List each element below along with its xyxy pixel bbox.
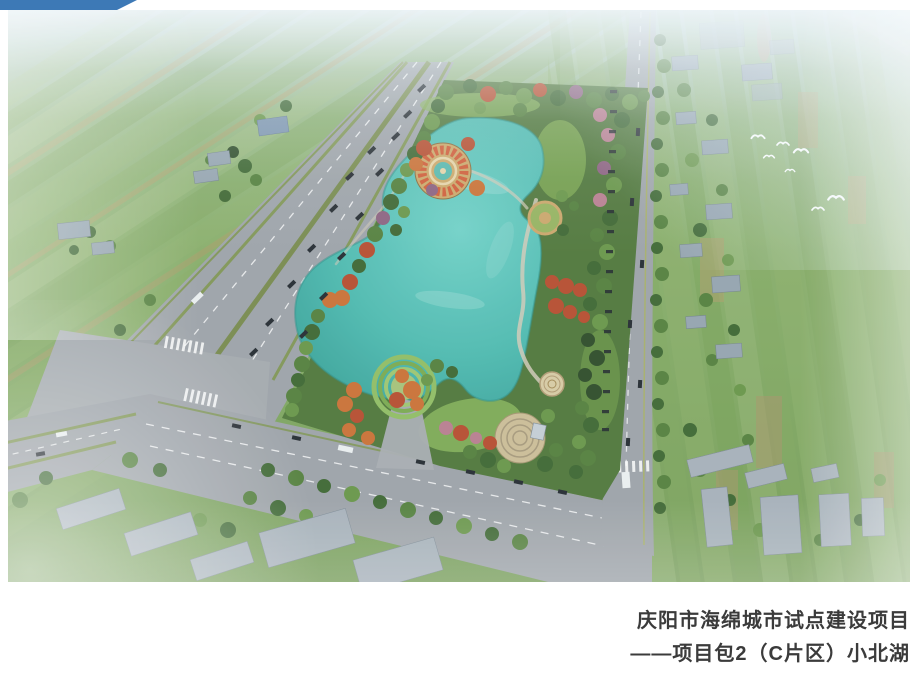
aerial-rendering-canvas xyxy=(8,10,910,582)
corner-accent-shape xyxy=(0,0,137,10)
aerial-rendering xyxy=(8,10,910,582)
caption: 庆阳市海绵城市试点建设项目 ——项目包2（C片区）小北湖 xyxy=(630,605,910,671)
corner-accent xyxy=(0,0,140,10)
caption-line-1: 庆阳市海绵城市试点建设项目 xyxy=(630,605,910,638)
presentation-slide: 庆阳市海绵城市试点建设项目 ——项目包2（C片区）小北湖 xyxy=(0,0,922,687)
atmospheric-haze xyxy=(8,10,910,582)
caption-line-2: ——项目包2（C片区）小北湖 xyxy=(630,638,910,671)
